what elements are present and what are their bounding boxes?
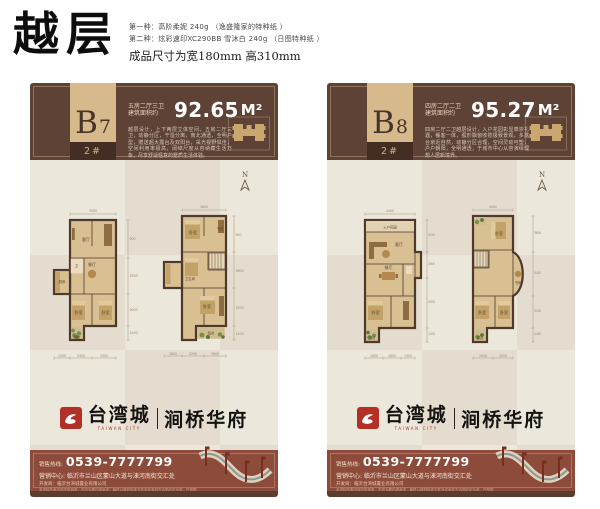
fine-print: 开发商：临沂台湾城置业有限公司 xyxy=(39,481,199,487)
svg-text:1400: 1400 xyxy=(428,332,435,336)
panel-body: N xyxy=(327,160,575,450)
svg-text:3300: 3300 xyxy=(100,354,108,358)
brand-caption: TAIWAN CITY xyxy=(98,427,141,431)
hotline-number: 0539-7777799 xyxy=(66,454,173,469)
footer-text: 销售热线: 0539-7777799 营销中心: 临沂市兰山区蒙山大道与涑河南街… xyxy=(39,454,199,496)
brand-name: 台湾城 xyxy=(88,406,151,425)
room-label: 阳台 xyxy=(74,335,81,340)
room-label: 入户花园 xyxy=(383,225,397,230)
svg-text:3200: 3200 xyxy=(534,309,541,313)
north-icon: N xyxy=(238,170,252,192)
floorplan-upper: 卧室 书房 卫生间 卧室 阳台 3600 1800 2200 3600 900 … xyxy=(152,204,244,364)
brochure-page: 越层 第一种：高阶柔妮 240g （逸盛隆家的特种纸 ） 第二种：炫彩速印XC2… xyxy=(0,0,600,509)
svg-text:3300: 3300 xyxy=(130,274,138,278)
panel-footer: 销售热线: 0539-7777799 营销中心: 临沂市兰山区蒙山大道与涑河南街… xyxy=(30,450,278,491)
logo-divider xyxy=(454,408,456,429)
room-label: 卧室 xyxy=(189,229,197,235)
hotline-number: 0539-7777799 xyxy=(363,454,470,469)
brand-caption: TAIWAN CITY xyxy=(395,427,438,431)
logo-mark-icon xyxy=(60,407,82,429)
svg-text:3600: 3600 xyxy=(534,231,541,235)
room-label: 客厅 xyxy=(82,236,90,242)
svg-text:3600: 3600 xyxy=(200,205,208,209)
rooms-area-label: 五房二厅三卫 建筑面积约 xyxy=(128,103,164,118)
svg-text:1800: 1800 xyxy=(370,354,378,358)
room-label: 书房 xyxy=(217,226,224,231)
keyplan-icon xyxy=(524,113,568,153)
svg-text:4400: 4400 xyxy=(386,209,394,213)
panel-b7: B 7 2# 五房二厅三卫 建筑面积约 92.65 M² 越层设计，上下两层立体… xyxy=(30,83,278,497)
spec-size-line: 成品尺寸为宽180mm 高310mm xyxy=(129,48,324,64)
room-label: 厨房 xyxy=(59,279,66,284)
svg-text:1400: 1400 xyxy=(534,332,541,336)
floorplan-lower: 入户花园 客厅 餐厅 卧室 阳台 4400 1800 1800 1400 320… xyxy=(343,208,435,366)
svg-text:4400: 4400 xyxy=(534,271,541,275)
rooms-label: 四房二厅二卫 xyxy=(425,103,461,111)
room-label: 卫生间 xyxy=(185,276,196,281)
unit-tab: B 8 xyxy=(367,83,413,142)
paper-specs: 第一种：高阶柔妮 240g （逸盛隆家的特种纸 ） 第二种：炫彩速印XC290B… xyxy=(129,21,324,64)
logo-divider xyxy=(157,408,159,429)
unit-info: 五房二厅三卫 建筑面积约 92.65 M² 越层设计，上下两层立体空间，五房二厅… xyxy=(128,98,222,159)
unit-description: 越层设计，上下两层立体空间，五房二厅三卫，动静分区，干湿分离，南北通透，全明户型… xyxy=(128,127,232,159)
svg-text:N: N xyxy=(242,171,248,179)
north-icon: N xyxy=(535,170,549,192)
room-label: 阳台 xyxy=(208,331,215,336)
north-indicator: N xyxy=(238,170,252,196)
bridge-illustration-icon xyxy=(493,446,571,492)
subbrand-name: 涧桥华府 xyxy=(461,405,545,432)
svg-text:3600: 3600 xyxy=(236,269,244,273)
svg-text:1800: 1800 xyxy=(169,352,177,356)
svg-text:3600: 3600 xyxy=(211,352,219,356)
room-label: 书房 xyxy=(515,280,522,285)
bridge-illustration-icon xyxy=(196,446,274,492)
room-label: 餐厅 xyxy=(385,264,393,270)
svg-text:1500: 1500 xyxy=(58,354,66,358)
svg-text:2000: 2000 xyxy=(499,354,507,358)
room-label: 卧室 xyxy=(102,309,110,315)
room-label: 餐厅 xyxy=(88,261,96,267)
room-label: 卧室 xyxy=(478,309,486,315)
address-line: 营销中心: 临沂市兰山区蒙山大道与涑河南街交汇处 xyxy=(39,471,199,480)
floorplan-lower: 客厅 餐厅 厨房 卫 卧室 卧室 阳台 3300 1500 2400 3300 … xyxy=(46,208,138,366)
unit-tab: B 7 xyxy=(70,83,116,142)
panel-b8: B 8 2# 四房二厅二卫 建筑面积约 95.27 M² 四房二厅二卫越层设计，… xyxy=(327,83,575,497)
unit-letter: B xyxy=(75,108,98,138)
room-label: 卧室 xyxy=(75,309,83,315)
svg-text:900: 900 xyxy=(236,233,242,237)
bottom-strip xyxy=(327,491,575,497)
bottom-strip xyxy=(30,491,278,497)
unit-info: 四房二厅二卫 建筑面积约 95.27 M² 四房二厅二卫越层设计，入户花园彰显尊… xyxy=(425,98,519,159)
svg-text:2400: 2400 xyxy=(77,354,85,358)
unit-letter: B xyxy=(372,108,395,138)
room-label: 卧室 xyxy=(495,230,503,236)
svg-text:3200: 3200 xyxy=(236,306,244,310)
spec-line-1: 第一种：高阶柔妮 240g （逸盛隆家的特种纸 ） xyxy=(129,21,324,33)
unit-number: 7 xyxy=(99,116,111,138)
panel-footer: 销售热线: 0539-7777799 营销中心: 临沂市兰山区蒙山大道与涑河南街… xyxy=(327,450,575,491)
room-label: 卧室 xyxy=(372,309,380,315)
room-label: 阳台 xyxy=(369,335,376,340)
svg-text:3200: 3200 xyxy=(428,233,435,237)
keyplan-icon xyxy=(227,113,271,153)
fine-print: 开发商：临沂台湾城置业有限公司 xyxy=(336,481,496,487)
svg-text:1400: 1400 xyxy=(404,354,412,358)
room-label: 客厅 xyxy=(395,241,403,247)
subbrand-name: 涧桥华府 xyxy=(164,405,248,432)
svg-text:3300: 3300 xyxy=(89,209,97,213)
svg-text:N: N xyxy=(539,171,545,179)
unit-number: 8 xyxy=(396,116,408,138)
svg-text:3000: 3000 xyxy=(130,308,138,312)
brand-logo: 台湾城 TAIWAN CITY 涧桥华府 xyxy=(327,398,575,438)
panel-header: B 7 2# 五房二厅三卫 建筑面积约 92.65 M² 越层设计，上下两层立体… xyxy=(30,83,278,160)
svg-text:2200: 2200 xyxy=(189,352,197,356)
svg-text:900: 900 xyxy=(130,237,136,241)
svg-text:1400: 1400 xyxy=(130,331,138,335)
hotline-label: 销售热线: xyxy=(336,460,360,468)
brand-name: 台湾城 xyxy=(385,406,448,425)
room-label: 卧室 xyxy=(203,303,211,309)
svg-text:4400: 4400 xyxy=(489,205,497,209)
floorplan-upper: 卧室 书房 卧室 卧室 露台 4400 2000 2000 3600 4400 … xyxy=(449,204,541,364)
page-title: 越层 xyxy=(13,8,119,60)
panel-header: B 8 2# 四房二厅二卫 建筑面积约 95.27 M² 四房二厅二卫越层设计，… xyxy=(327,83,575,160)
logo-mark-icon xyxy=(357,407,379,429)
walls xyxy=(365,220,421,342)
footer-text: 销售热线: 0539-7777799 营销中心: 临沂市兰山区蒙山大道与涑河南街… xyxy=(336,454,496,496)
north-indicator: N xyxy=(535,170,549,196)
area-label: 建筑面积约 xyxy=(128,110,164,118)
hotline-label: 销售热线: xyxy=(39,460,63,468)
rooms-area-label: 四房二厅二卫 建筑面积约 xyxy=(425,103,461,118)
unit-description: 四房二厅二卫越层设计，入户花园彰显尊崇礼遇，餐客一体，弧形飘窗收揽极致景观，多露… xyxy=(425,127,529,159)
spec-line-2: 第二种：炫彩速印XC290BB 雪沐白 240g （日图特种纸 ） xyxy=(129,33,324,45)
room-label: 露台 xyxy=(477,335,484,340)
block-tag: 2# xyxy=(70,142,116,161)
address-line: 营销中心: 临沂市兰山区蒙山大道与涑河南街交汇处 xyxy=(336,471,496,480)
panel-body: N xyxy=(30,160,278,450)
svg-text:5000: 5000 xyxy=(428,300,435,304)
room-label: 卧室 xyxy=(500,309,508,315)
svg-text:2000: 2000 xyxy=(479,354,487,358)
svg-text:1800: 1800 xyxy=(388,354,396,358)
block-tag: 2# xyxy=(367,142,413,161)
rooms-label: 五房二厅三卫 xyxy=(128,103,164,111)
brand-logo: 台湾城 TAIWAN CITY 涧桥华府 xyxy=(30,398,278,438)
svg-text:1400: 1400 xyxy=(236,332,244,336)
svg-text:2600: 2600 xyxy=(428,262,435,266)
area-label: 建筑面积约 xyxy=(425,110,461,118)
